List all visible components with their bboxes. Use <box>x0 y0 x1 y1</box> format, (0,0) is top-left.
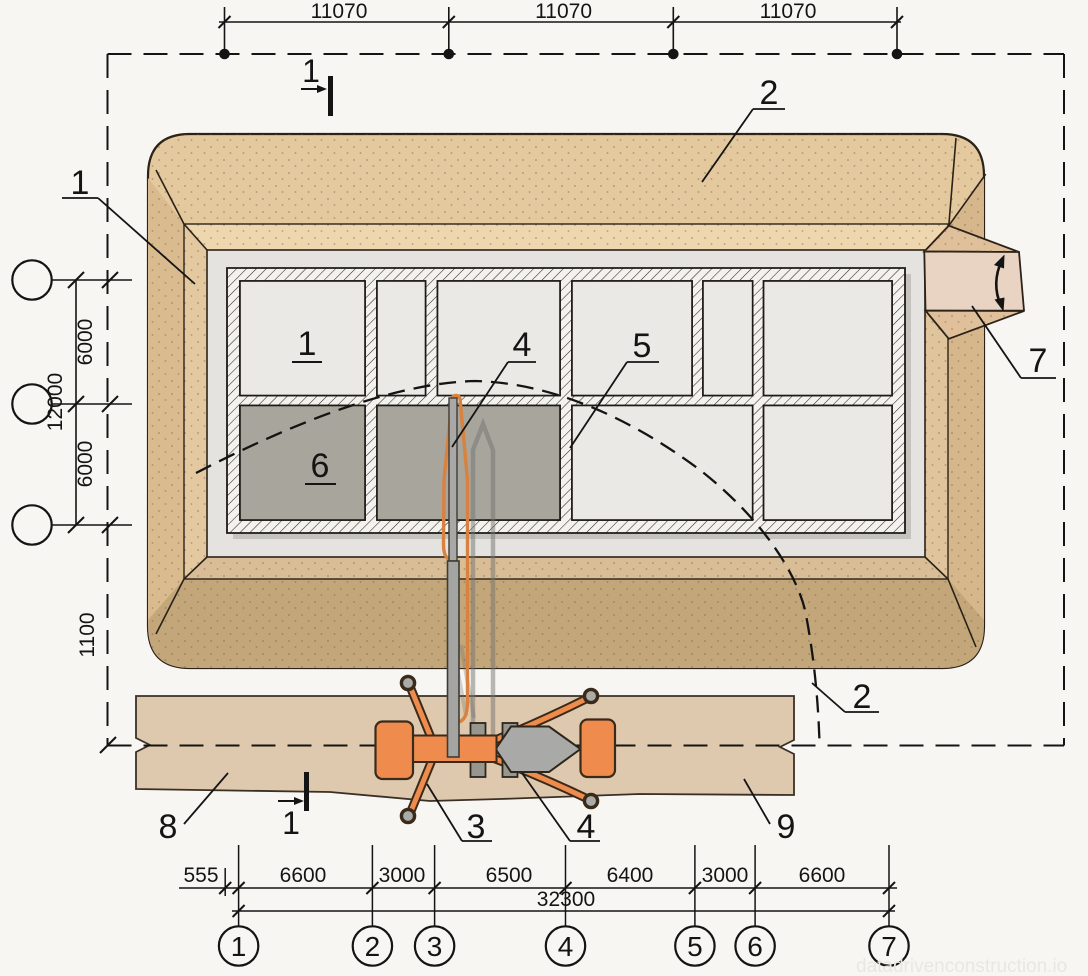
svg-text:32300: 32300 <box>537 888 595 911</box>
svg-text:7: 7 <box>1029 342 1048 380</box>
svg-text:1: 1 <box>298 325 317 363</box>
svg-text:2: 2 <box>365 931 381 962</box>
svg-text:3: 3 <box>427 931 443 962</box>
svg-text:1: 1 <box>282 805 300 841</box>
svg-text:11070: 11070 <box>535 0 592 23</box>
svg-text:11070: 11070 <box>760 0 817 23</box>
svg-text:2: 2 <box>853 678 872 716</box>
svg-text:8: 8 <box>159 808 178 846</box>
svg-text:11070: 11070 <box>311 0 368 23</box>
svg-text:4: 4 <box>513 326 532 364</box>
svg-text:3000: 3000 <box>702 864 749 887</box>
svg-text:1: 1 <box>71 164 90 202</box>
svg-text:6: 6 <box>311 447 330 485</box>
svg-text:4: 4 <box>558 931 574 962</box>
svg-text:1: 1 <box>231 931 247 962</box>
svg-text:datadrivenconstruction.io: datadrivenconstruction.io <box>856 956 1067 976</box>
svg-text:5: 5 <box>633 327 652 365</box>
svg-text:6600: 6600 <box>280 864 327 887</box>
svg-text:6: 6 <box>747 931 763 962</box>
svg-text:555: 555 <box>183 864 218 887</box>
svg-text:1100: 1100 <box>76 612 99 657</box>
svg-text:2: 2 <box>760 74 779 112</box>
svg-text:3000: 3000 <box>379 864 426 887</box>
svg-text:1: 1 <box>302 53 320 89</box>
svg-text:6000: 6000 <box>74 441 97 488</box>
svg-text:12000: 12000 <box>44 373 67 431</box>
svg-text:6000: 6000 <box>74 319 97 366</box>
svg-text:9: 9 <box>777 808 796 846</box>
svg-text:6400: 6400 <box>607 864 654 887</box>
svg-text:5: 5 <box>687 931 703 962</box>
svg-text:6600: 6600 <box>799 864 846 887</box>
svg-text:6500: 6500 <box>486 864 533 887</box>
